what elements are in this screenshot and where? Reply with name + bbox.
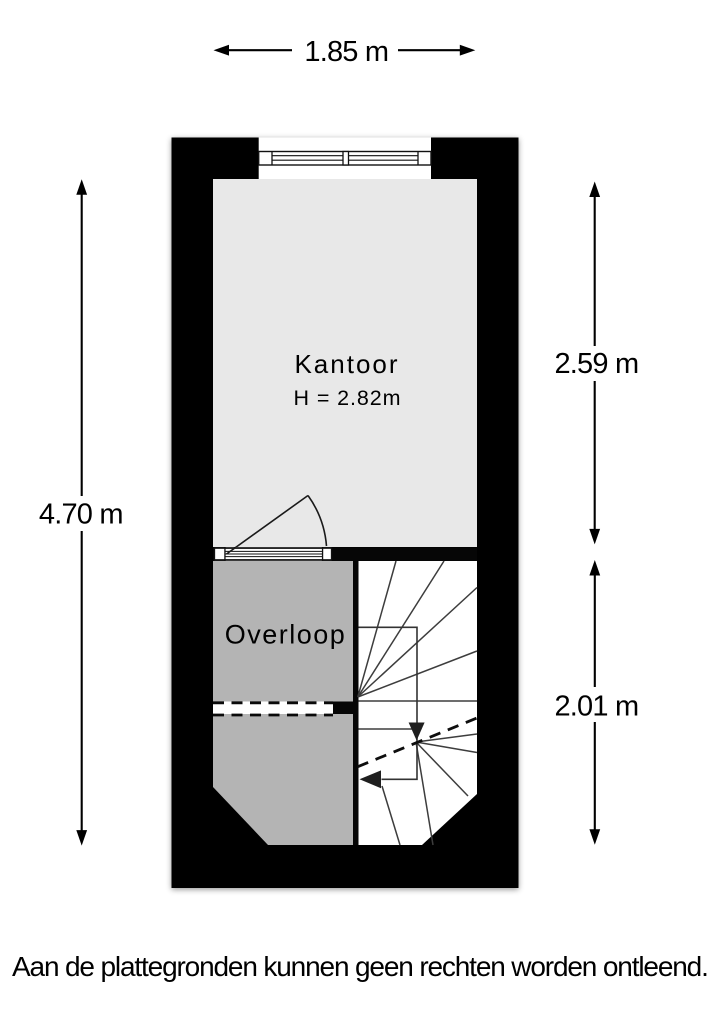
svg-text:1.85 m: 1.85 m bbox=[304, 36, 388, 68]
svg-text:Aan de plattegronden kunnen ge: Aan de plattegronden kunnen geen rechten… bbox=[12, 951, 708, 982]
svg-text:Kantoor: Kantoor bbox=[294, 349, 399, 379]
svg-text:Overloop: Overloop bbox=[225, 620, 347, 650]
svg-text:2.59 m: 2.59 m bbox=[554, 348, 638, 380]
svg-text:2.01 m: 2.01 m bbox=[554, 691, 638, 723]
svg-text:4.70 m: 4.70 m bbox=[39, 499, 123, 531]
svg-text:H = 2.82m: H = 2.82m bbox=[294, 386, 402, 410]
